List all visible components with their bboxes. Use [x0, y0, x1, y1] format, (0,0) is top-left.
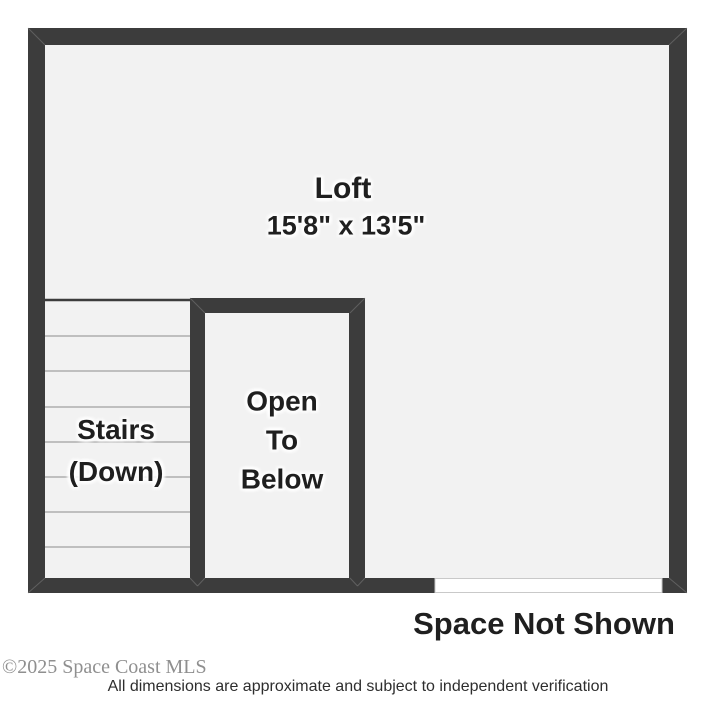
loft-room-label: Loft — [315, 172, 372, 206]
open-to-below-label: Open To Below — [241, 382, 323, 499]
space-not-shown-label: Space Not Shown — [413, 606, 675, 642]
disclaimer-text: All dimensions are approximate and subje… — [0, 678, 716, 696]
stairs-label-line1: Stairs — [69, 409, 164, 451]
wall-opening — [435, 579, 662, 593]
floorplan-drawing — [0, 0, 716, 703]
open-to-below-line2: To — [241, 421, 323, 460]
copyright-text: ©2025 Space Coast MLS — [2, 656, 207, 679]
floorplan-canvas: Loft 15'8" x 13'5" Stairs (Down) Open To… — [0, 0, 716, 703]
open-to-below-line3: Below — [241, 460, 323, 499]
open-to-below-line1: Open — [241, 382, 323, 421]
stairs-label: Stairs (Down) — [69, 409, 164, 493]
stairs-label-line2: (Down) — [69, 451, 164, 493]
loft-dimensions: 15'8" x 13'5" — [267, 211, 426, 242]
